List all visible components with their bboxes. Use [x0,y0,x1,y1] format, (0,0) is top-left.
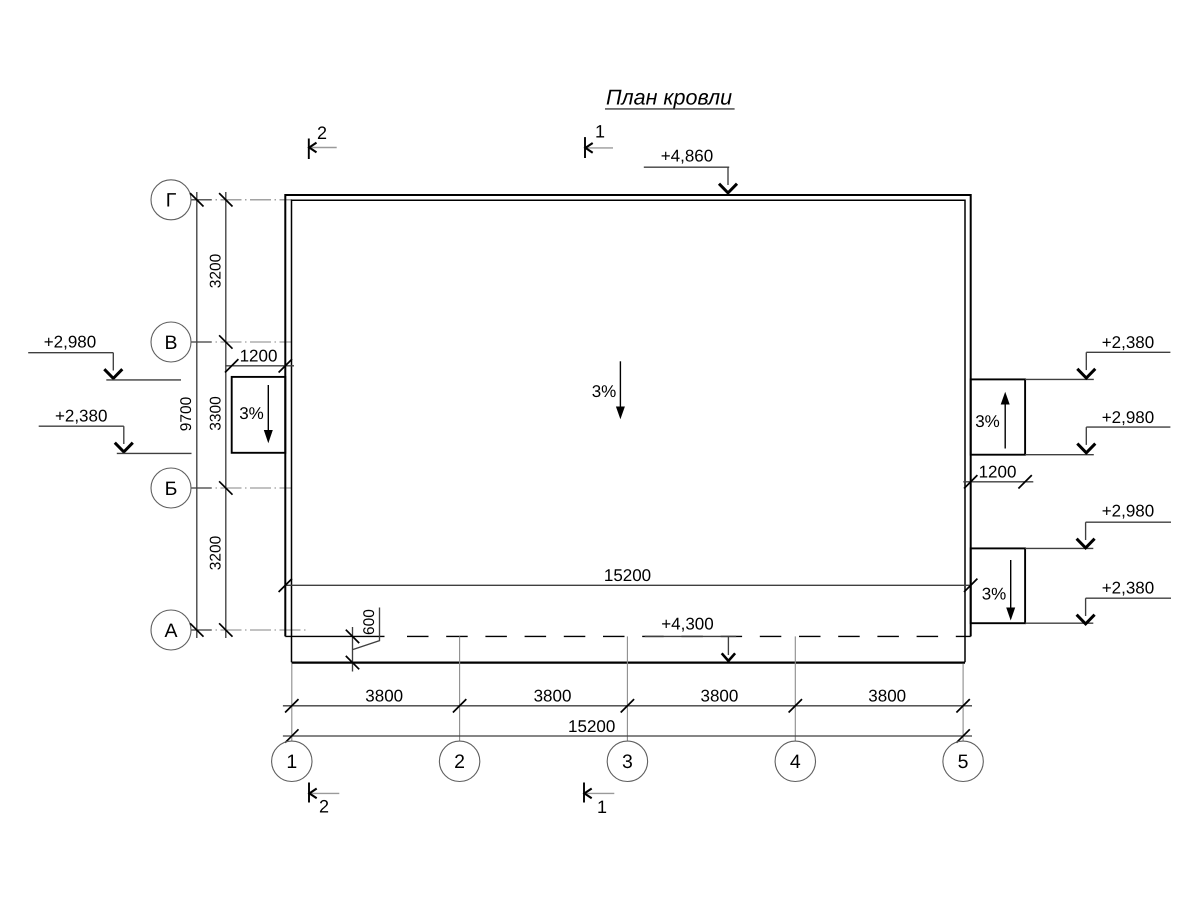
svg-text:3800: 3800 [868,687,906,706]
svg-text:В: В [164,332,177,354]
svg-text:3800: 3800 [365,687,403,706]
svg-text:4: 4 [790,751,801,773]
svg-text:3300: 3300 [208,396,225,431]
svg-text:5: 5 [958,751,969,773]
svg-text:+4,300: +4,300 [661,615,713,634]
svg-text:+2,980: +2,980 [44,332,96,351]
svg-text:+2,380: +2,380 [1102,333,1154,352]
svg-text:3%: 3% [975,412,1000,431]
svg-text:3%: 3% [592,382,617,401]
svg-text:+2,380: +2,380 [55,406,107,425]
svg-text:600: 600 [361,609,378,635]
svg-text:1200: 1200 [979,462,1017,481]
svg-text:3%: 3% [239,404,264,423]
svg-text:1: 1 [597,797,607,817]
svg-text:3800: 3800 [534,687,572,706]
svg-text:+2,980: +2,980 [1102,501,1154,520]
svg-text:План кровли: План кровли [606,86,732,110]
svg-text:+2,380: +2,380 [1102,578,1154,597]
svg-text:15200: 15200 [568,717,615,736]
svg-text:1: 1 [595,122,605,142]
svg-text:1200: 1200 [240,346,278,365]
svg-text:9700: 9700 [178,396,195,431]
svg-text:А: А [164,620,177,642]
svg-text:+4,860: +4,860 [661,147,713,166]
svg-text:3200: 3200 [208,253,225,288]
svg-text:Б: Б [165,478,178,500]
svg-text:3%: 3% [982,584,1007,603]
svg-text:3: 3 [622,751,633,773]
svg-text:3200: 3200 [208,535,225,570]
svg-text:+2,980: +2,980 [1102,408,1154,427]
svg-text:2: 2 [319,797,329,817]
svg-text:15200: 15200 [604,566,651,585]
svg-text:2: 2 [454,751,465,773]
svg-text:3800: 3800 [700,687,738,706]
svg-text:1: 1 [286,751,297,773]
svg-text:2: 2 [317,123,327,143]
svg-text:Г: Г [166,190,177,212]
